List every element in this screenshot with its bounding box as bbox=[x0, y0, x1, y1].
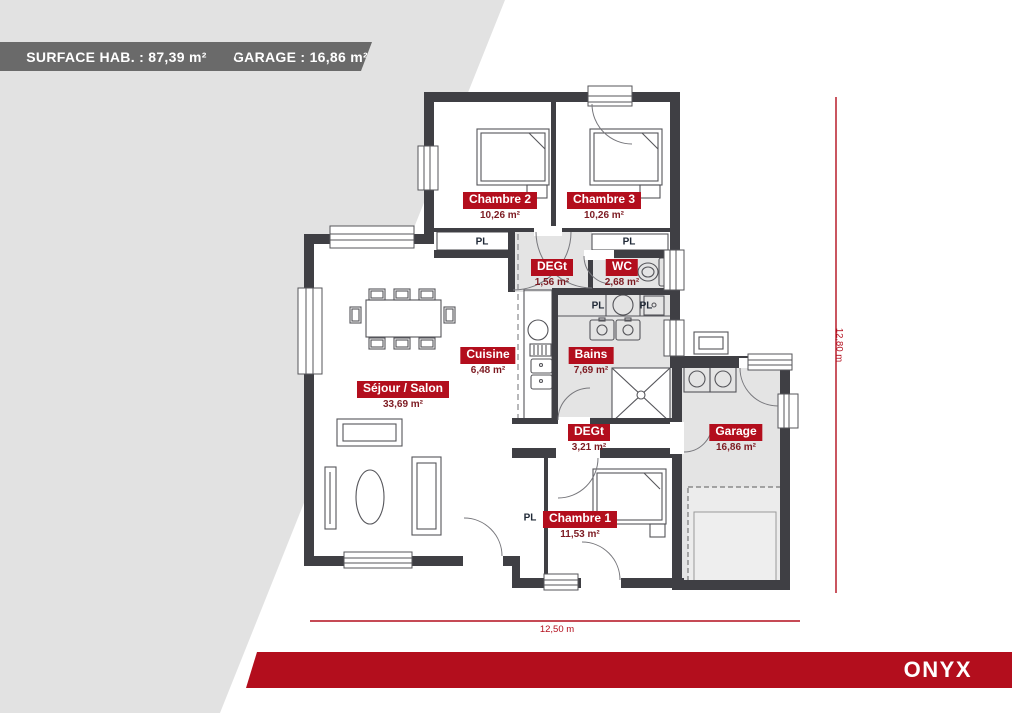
page: SURFACE HAB. : 87,39 m² GARAGE : 16,86 m… bbox=[0, 0, 1012, 713]
model-name: ONYX bbox=[904, 652, 972, 688]
dimension-width-label: 12,50 m bbox=[540, 624, 574, 635]
floorplan-drawing bbox=[0, 0, 1012, 713]
dimension-height-label: 12,80 m bbox=[834, 328, 845, 362]
